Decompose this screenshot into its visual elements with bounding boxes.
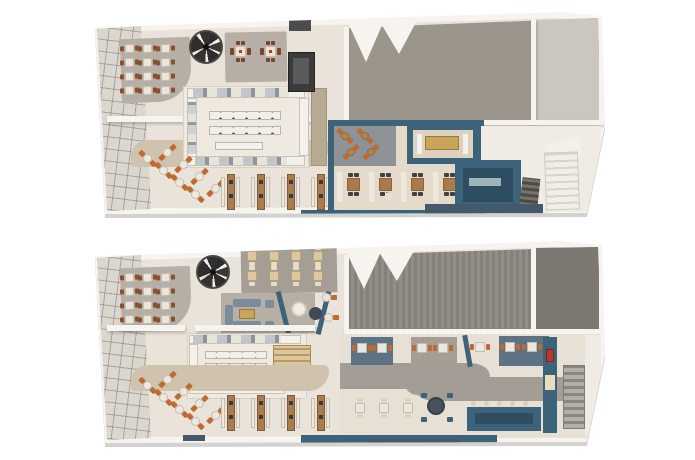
booth-round-a: [361, 132, 369, 140]
chair: [381, 414, 387, 418]
chair: [449, 345, 453, 351]
table-top: [527, 342, 537, 352]
chair: [171, 59, 175, 65]
dining-rtable-row: [221, 395, 241, 431]
table-grid-nw: [125, 58, 134, 67]
table-grid-nw: [143, 44, 152, 53]
lounge-table-gold: [239, 309, 255, 319]
chair: [271, 58, 275, 62]
booth-table-row-a: [269, 251, 279, 261]
chair: [138, 46, 142, 52]
bar-counter-inner: [475, 413, 533, 424]
room-divider-wall: [531, 247, 536, 333]
floor-plan-lower: [75, 237, 645, 459]
chair: [486, 344, 490, 350]
cafe-round-row-b: [163, 375, 172, 384]
table-grid-nw: [161, 86, 170, 95]
chair: [405, 398, 411, 402]
table-item: [229, 180, 233, 184]
table-item: [319, 401, 323, 405]
table-top: [505, 342, 515, 352]
rtable-part: [266, 177, 270, 207]
table-top: [161, 315, 170, 324]
chair: [372, 345, 376, 351]
feature-table-dark: [427, 397, 445, 415]
booth-round-item: [385, 192, 393, 200]
lounge-sofa-a: [233, 299, 261, 307]
chair: [271, 282, 277, 286]
alcove-table-gold: [425, 136, 459, 150]
cafe-round-row-a: [191, 190, 200, 199]
booth-round-b: [347, 148, 355, 156]
chair: [156, 275, 160, 281]
table-grid-nw: [143, 72, 152, 81]
table-grid-nw: [161, 72, 170, 81]
kitchen-counter-right: [299, 98, 309, 156]
feature-chair-top: [447, 393, 453, 398]
table-grid-nw: [143, 58, 152, 67]
room-left-wall: [344, 255, 349, 333]
table-item: [319, 194, 323, 198]
feature-chair-bottom: [421, 417, 427, 422]
table-item-red-b: [269, 50, 272, 53]
table-top: [161, 273, 170, 282]
booth-table-row-b: [269, 271, 279, 281]
bar-stool-row: [523, 401, 528, 406]
table-top: [161, 287, 170, 296]
east-wall: [599, 18, 604, 124]
chair: [433, 345, 437, 351]
kitchen-equipment-bottom: [195, 157, 287, 165]
lounge-sofa-c: [225, 305, 233, 325]
service-panel: [311, 88, 327, 166]
alcove-bench-a: [417, 134, 422, 154]
nook-table-dark: [309, 307, 322, 320]
room-divider-wall: [531, 19, 536, 123]
lounge-armchair-a: [265, 300, 274, 308]
rtable-part: [311, 398, 315, 428]
table-top: [125, 58, 134, 67]
cafe-round-row-b: [211, 184, 220, 193]
table-top: [143, 273, 152, 282]
chair: [171, 73, 175, 79]
spiral-center: [203, 44, 209, 50]
table-top: [379, 403, 389, 413]
rtable-part: [266, 398, 270, 428]
render-canvas: [0, 0, 695, 460]
bistro-table-b: [417, 343, 427, 353]
chair: [156, 317, 160, 323]
chair: [293, 282, 299, 286]
chair: [386, 173, 391, 177]
table-grid-nw: [143, 315, 152, 324]
chair: [315, 246, 321, 250]
table-top: [161, 86, 170, 95]
path-curve-c: [405, 367, 465, 395]
rtable-part: [227, 395, 236, 431]
chair: [380, 173, 385, 177]
cafe-round-row-a: [159, 166, 168, 175]
feature-chair-top: [421, 393, 427, 398]
table-top: [143, 72, 152, 81]
bistro-table-a: [357, 343, 367, 353]
chair: [522, 344, 526, 350]
chair: [500, 344, 504, 350]
table-item: [229, 415, 233, 419]
rtable-part: [221, 398, 225, 428]
booth-table-row-a: [291, 251, 301, 261]
rtable-part: [296, 398, 300, 428]
booth-table-row: [379, 178, 392, 191]
dining-rtable-row: [311, 395, 331, 431]
table-top: [347, 178, 360, 191]
chair: [156, 88, 160, 94]
chair: [293, 266, 299, 270]
cafe-round-row-a: [143, 154, 152, 163]
chair: [266, 58, 270, 62]
booth-table-row-b: [247, 271, 257, 281]
rtable-part: [311, 177, 315, 207]
chair: [241, 58, 245, 62]
chair: [538, 344, 542, 350]
chair: [138, 303, 142, 309]
chair: [171, 316, 175, 322]
table-top: [143, 44, 152, 53]
table-item: [289, 180, 293, 184]
chair: [249, 282, 255, 286]
booth-table-row: [347, 178, 360, 191]
table-top: [125, 273, 134, 282]
chair: [249, 246, 255, 250]
chair: [277, 48, 281, 55]
table-top: [291, 251, 301, 261]
partition-wall-long-b: [195, 325, 315, 331]
chair: [516, 344, 520, 350]
wall-cabinet-dark: [289, 20, 311, 31]
room-left-wall: [344, 27, 349, 125]
table-top: [475, 342, 485, 352]
table-grid-nw: [125, 86, 134, 95]
kitchen-equipment-left: [188, 102, 196, 154]
spiral-center: [210, 269, 216, 275]
table-top: [143, 287, 152, 296]
chair: [357, 414, 363, 418]
table-grid-nw: [143, 273, 152, 282]
chair: [156, 60, 160, 66]
booth-bench-columns: [369, 172, 374, 202]
cafe-round-row-a: [191, 417, 200, 426]
rtable-part: [257, 395, 266, 431]
dining-rtable-row: [251, 395, 271, 431]
kitchen-equipment-row: [193, 88, 289, 97]
booth-table-row-b: [313, 271, 323, 281]
chair: [156, 303, 160, 309]
rtable-part: [257, 174, 266, 210]
chair: [171, 288, 175, 294]
table-top: [161, 72, 170, 81]
rtable-part: [221, 177, 225, 207]
kitchen-hood-inner: [293, 58, 309, 84]
entry-mat-navy-west: [183, 435, 205, 441]
bistro-table-row-s: [355, 403, 365, 413]
bistro-table-d: [527, 342, 537, 352]
chair: [271, 246, 277, 250]
booth-table-row: [411, 178, 424, 191]
bistro-table-row-s: [379, 403, 389, 413]
chair: [412, 345, 416, 351]
fire-cabinet: [546, 349, 554, 362]
chair: [120, 60, 124, 66]
chair: [412, 192, 417, 196]
table-top: [417, 343, 427, 353]
table-top: [357, 343, 367, 353]
table-item: [259, 194, 263, 198]
booth-table-row-a: [313, 251, 323, 261]
table-grid-nw: [161, 287, 170, 296]
dining-rtable-row: [281, 174, 301, 210]
table-top: [403, 403, 413, 413]
bar-stool-row: [510, 401, 515, 406]
chair: [444, 173, 449, 177]
bar-stool-row: [484, 401, 489, 406]
table-grid-nw: [143, 287, 152, 296]
chair: [241, 41, 245, 45]
table-top: [377, 343, 387, 353]
table-grid-nw: [125, 273, 134, 282]
chair: [418, 173, 423, 177]
alcove-bench-b: [463, 134, 468, 154]
rtable-part: [287, 395, 296, 431]
table-top: [379, 178, 392, 191]
table-grid-nw: [125, 315, 134, 324]
table-item: [259, 415, 263, 419]
bar-stool-row: [471, 401, 476, 406]
table-top: [411, 178, 424, 191]
table-top: [438, 343, 448, 353]
chair: [260, 48, 264, 55]
chair: [266, 41, 270, 45]
table-top: [355, 403, 365, 413]
chair: [171, 87, 175, 93]
cafe-round-row-b: [211, 411, 220, 420]
divider-panel: [545, 375, 555, 390]
dining-rtable-row: [281, 395, 301, 431]
rtable-part: [227, 174, 236, 210]
chair: [357, 398, 363, 402]
table-top: [125, 86, 134, 95]
chair: [470, 344, 474, 350]
bar-stool-row: [497, 401, 502, 406]
rtable-part: [236, 177, 240, 207]
table-grid-nw: [143, 301, 152, 310]
chair: [138, 74, 142, 80]
chair: [352, 345, 356, 351]
chair: [120, 88, 124, 94]
chair: [236, 41, 240, 45]
cafe-round-row-b: [163, 148, 172, 157]
chair: [405, 414, 411, 418]
main-staircase: [544, 151, 580, 210]
chair: [271, 266, 277, 270]
table-grid-nw: [161, 58, 170, 67]
table-top: [125, 301, 134, 310]
chair: [412, 173, 417, 177]
chair: [138, 275, 142, 281]
booth-round-b: [367, 148, 375, 156]
chair: [120, 275, 124, 281]
bistro-table-c: [475, 342, 485, 352]
chair: [247, 48, 251, 55]
ramp-stairs: [520, 177, 541, 207]
table-top: [125, 315, 134, 324]
table-grid-nw: [161, 273, 170, 282]
table-top: [313, 251, 323, 261]
chair: [348, 192, 353, 196]
cafe-round-row-b: [195, 172, 204, 181]
chair: [171, 45, 175, 51]
table-top: [269, 271, 279, 281]
bistro-table-b: [438, 343, 448, 353]
kitchen-island-c: [215, 142, 263, 150]
dining-rtable-row: [221, 174, 241, 210]
chair: [348, 173, 353, 177]
table-top: [143, 315, 152, 324]
floor-plan-upper: [75, 8, 645, 230]
table-top: [324, 313, 333, 322]
chair: [381, 398, 387, 402]
kitchen-island-b: [209, 126, 281, 135]
rtable-part: [281, 177, 285, 207]
bistro-table-a: [377, 343, 387, 353]
table-grid-nw: [125, 72, 134, 81]
booth-table-row-b: [291, 271, 301, 281]
chair: [428, 345, 432, 351]
partition-wall-long-a: [107, 325, 185, 331]
table-top: [125, 72, 134, 81]
nook-round-table: [291, 301, 307, 317]
table-grid-nw: [143, 86, 152, 95]
cafe-round-row-a: [143, 381, 152, 390]
table-item: [289, 401, 293, 405]
chair: [249, 266, 255, 270]
table-item: [289, 415, 293, 419]
table-top: [125, 44, 134, 53]
chair: [156, 74, 160, 80]
kitchen-island-a: [205, 351, 267, 359]
chair: [418, 192, 423, 196]
table-grid-nw: [125, 44, 134, 53]
table-item: [289, 194, 293, 198]
table-top: [161, 44, 170, 53]
table-top: [143, 58, 152, 67]
chair: [293, 246, 299, 250]
chair: [138, 88, 142, 94]
booth-table-row-a: [247, 251, 257, 261]
chair: [120, 74, 124, 80]
table-top: [161, 58, 170, 67]
cafe-round-row-b: [195, 399, 204, 408]
kitchen-island-a: [209, 111, 281, 120]
table-top: [143, 301, 152, 310]
chair: [120, 46, 124, 52]
rtable-part: [326, 398, 330, 428]
cafe-round-row-a: [175, 178, 184, 187]
chair: [236, 58, 240, 62]
table-top: [247, 271, 257, 281]
chair: [120, 289, 124, 295]
table-top: [161, 301, 170, 310]
chair: [271, 41, 275, 45]
table-grid-nw: [161, 315, 170, 324]
table-item: [319, 180, 323, 184]
rear-staircase: [563, 365, 585, 429]
chair: [315, 266, 321, 270]
signage-navy: [265, 242, 283, 247]
cafe-round-row-a: [159, 393, 168, 402]
chair: [331, 295, 337, 300]
chair: [354, 192, 359, 196]
carpet-top-center: [225, 31, 288, 82]
chair: [171, 274, 175, 280]
table-grid-nw: [125, 301, 134, 310]
chair: [138, 60, 142, 66]
table-top: [143, 86, 152, 95]
window-round-b: [324, 313, 333, 322]
table-top: [247, 251, 257, 261]
table-item: [259, 401, 263, 405]
bistro-table-row-s: [403, 403, 413, 413]
bistro-table-d: [505, 342, 515, 352]
cafe-round-row-b: [179, 160, 188, 169]
rtable-part: [251, 177, 255, 207]
chair: [354, 173, 359, 177]
table-grid-nw: [161, 44, 170, 53]
rtable-part: [296, 177, 300, 207]
table-item-red-a: [239, 50, 242, 53]
rear-floor: [585, 335, 601, 435]
chair: [156, 289, 160, 295]
dining-rtable-row: [251, 174, 271, 210]
table-item: [259, 180, 263, 184]
chair: [171, 302, 175, 308]
table-item: [229, 401, 233, 405]
service-desk-shelf: [469, 178, 501, 186]
table-top: [269, 251, 279, 261]
booth-round-a: [341, 132, 349, 140]
rtable-part: [317, 174, 326, 210]
rtable-part: [251, 398, 255, 428]
chair: [315, 282, 321, 286]
rtable-part: [317, 395, 326, 431]
chair: [138, 317, 142, 323]
table-top: [322, 293, 331, 302]
booth-bench-columns: [337, 172, 342, 202]
chair: [388, 345, 392, 351]
table-top: [313, 271, 323, 281]
table-grid-nw: [161, 301, 170, 310]
chair: [120, 317, 124, 323]
kitchen-equipment-row: [193, 335, 281, 343]
cafe-round-row-a: [175, 405, 184, 414]
booth-bench-columns: [433, 172, 438, 202]
table-item: [229, 194, 233, 198]
rtable-part: [236, 398, 240, 428]
table-top: [291, 271, 301, 281]
chair: [444, 192, 449, 196]
booth-bench-columns: [401, 172, 406, 202]
window-round-a: [322, 293, 331, 302]
cafe-round-row-b: [179, 387, 188, 396]
